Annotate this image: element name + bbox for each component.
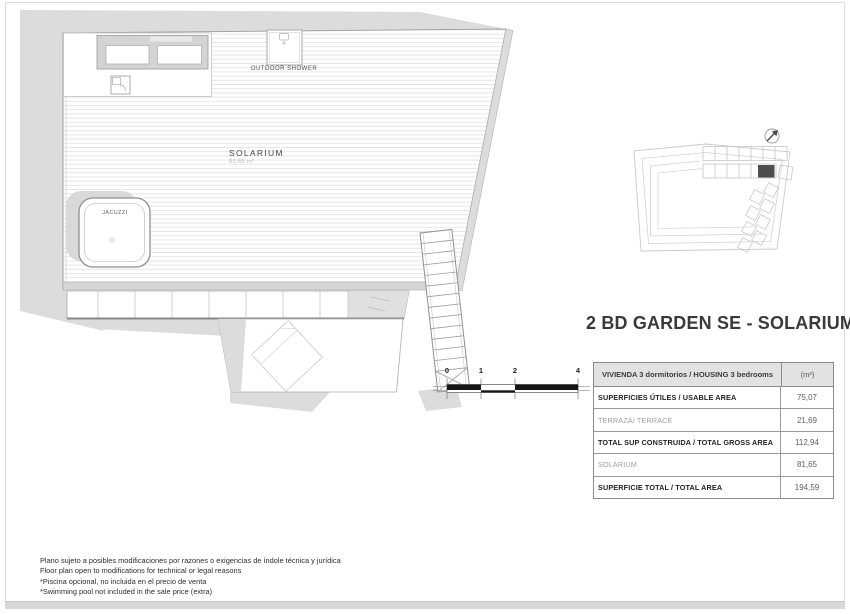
row-value: 112,94 (781, 432, 833, 453)
disclaimer-line: Plano sujeto a posibles modificaciones p… (40, 556, 341, 566)
page-title: 2 BD GARDEN SE - SOLARIUM (586, 312, 850, 334)
table-header-unit: (m²) (782, 363, 833, 386)
solarium-area-label: 81,65 m² (229, 159, 254, 165)
row-label: TERRAZA/ TERRACE (594, 409, 781, 430)
scale-tick-0: 0 (440, 366, 454, 375)
table-header-housing: VIVIENDA 3 dormitorios / HOUSING 3 bedro… (594, 363, 782, 386)
row-value: 81,65 (781, 454, 833, 475)
table-row: TOTAL SUP CONSTRUIDA / TOTAL GROSS AREA … (594, 432, 833, 454)
disclaimer-block: Plano sujeto a posibles modificaciones p… (40, 556, 341, 598)
sheet: { "sheet": { "title": "2 BD GARDEN SE - … (0, 0, 850, 614)
scale-tick-1: 1 (474, 366, 488, 375)
disclaimer-line: *Swimming pool not included in the sale … (40, 587, 341, 597)
disclaimer-line: *Piscina opcional, no incluida en el pre… (40, 577, 341, 587)
table-row: SUPERFICIES ÚTILES / USABLE AREA 75,07 (594, 387, 833, 409)
table-row: SUPERFICIE TOTAL / TOTAL AREA 194,59 (594, 477, 833, 498)
area-table-header: VIVIENDA 3 dormitorios / HOUSING 3 bedro… (594, 363, 833, 387)
jacuzzi-label: JACUZZI (85, 210, 145, 216)
row-label: TOTAL SUP CONSTRUIDA / TOTAL GROSS AREA (594, 432, 781, 453)
row-value: 75,07 (781, 387, 833, 408)
table-row: SOLARIUM 81,65 (594, 454, 833, 476)
scale-tick-2: 2 (508, 366, 522, 375)
area-table: VIVIENDA 3 dormitorios / HOUSING 3 bedro… (593, 362, 834, 499)
row-label: SUPERFICIES ÚTILES / USABLE AREA (594, 387, 781, 408)
row-value: 21,69 (781, 409, 833, 430)
row-label: SOLARIUM (594, 454, 781, 475)
solarium-label: SOLARIUM (229, 148, 284, 158)
disclaimer-line: Floor plan open to modifications for tec… (40, 566, 341, 576)
sheet-border (5, 2, 845, 602)
outdoor-shower-label: OUTDOOR SHOWER (234, 66, 334, 72)
row-label: SUPERFICIE TOTAL / TOTAL AREA (594, 477, 781, 498)
row-value: 194,59 (781, 477, 833, 498)
table-row: TERRAZA/ TERRACE 21,69 (594, 409, 833, 431)
scale-tick-4: 4 (571, 366, 585, 375)
sheet-bottom-edge (5, 601, 845, 609)
